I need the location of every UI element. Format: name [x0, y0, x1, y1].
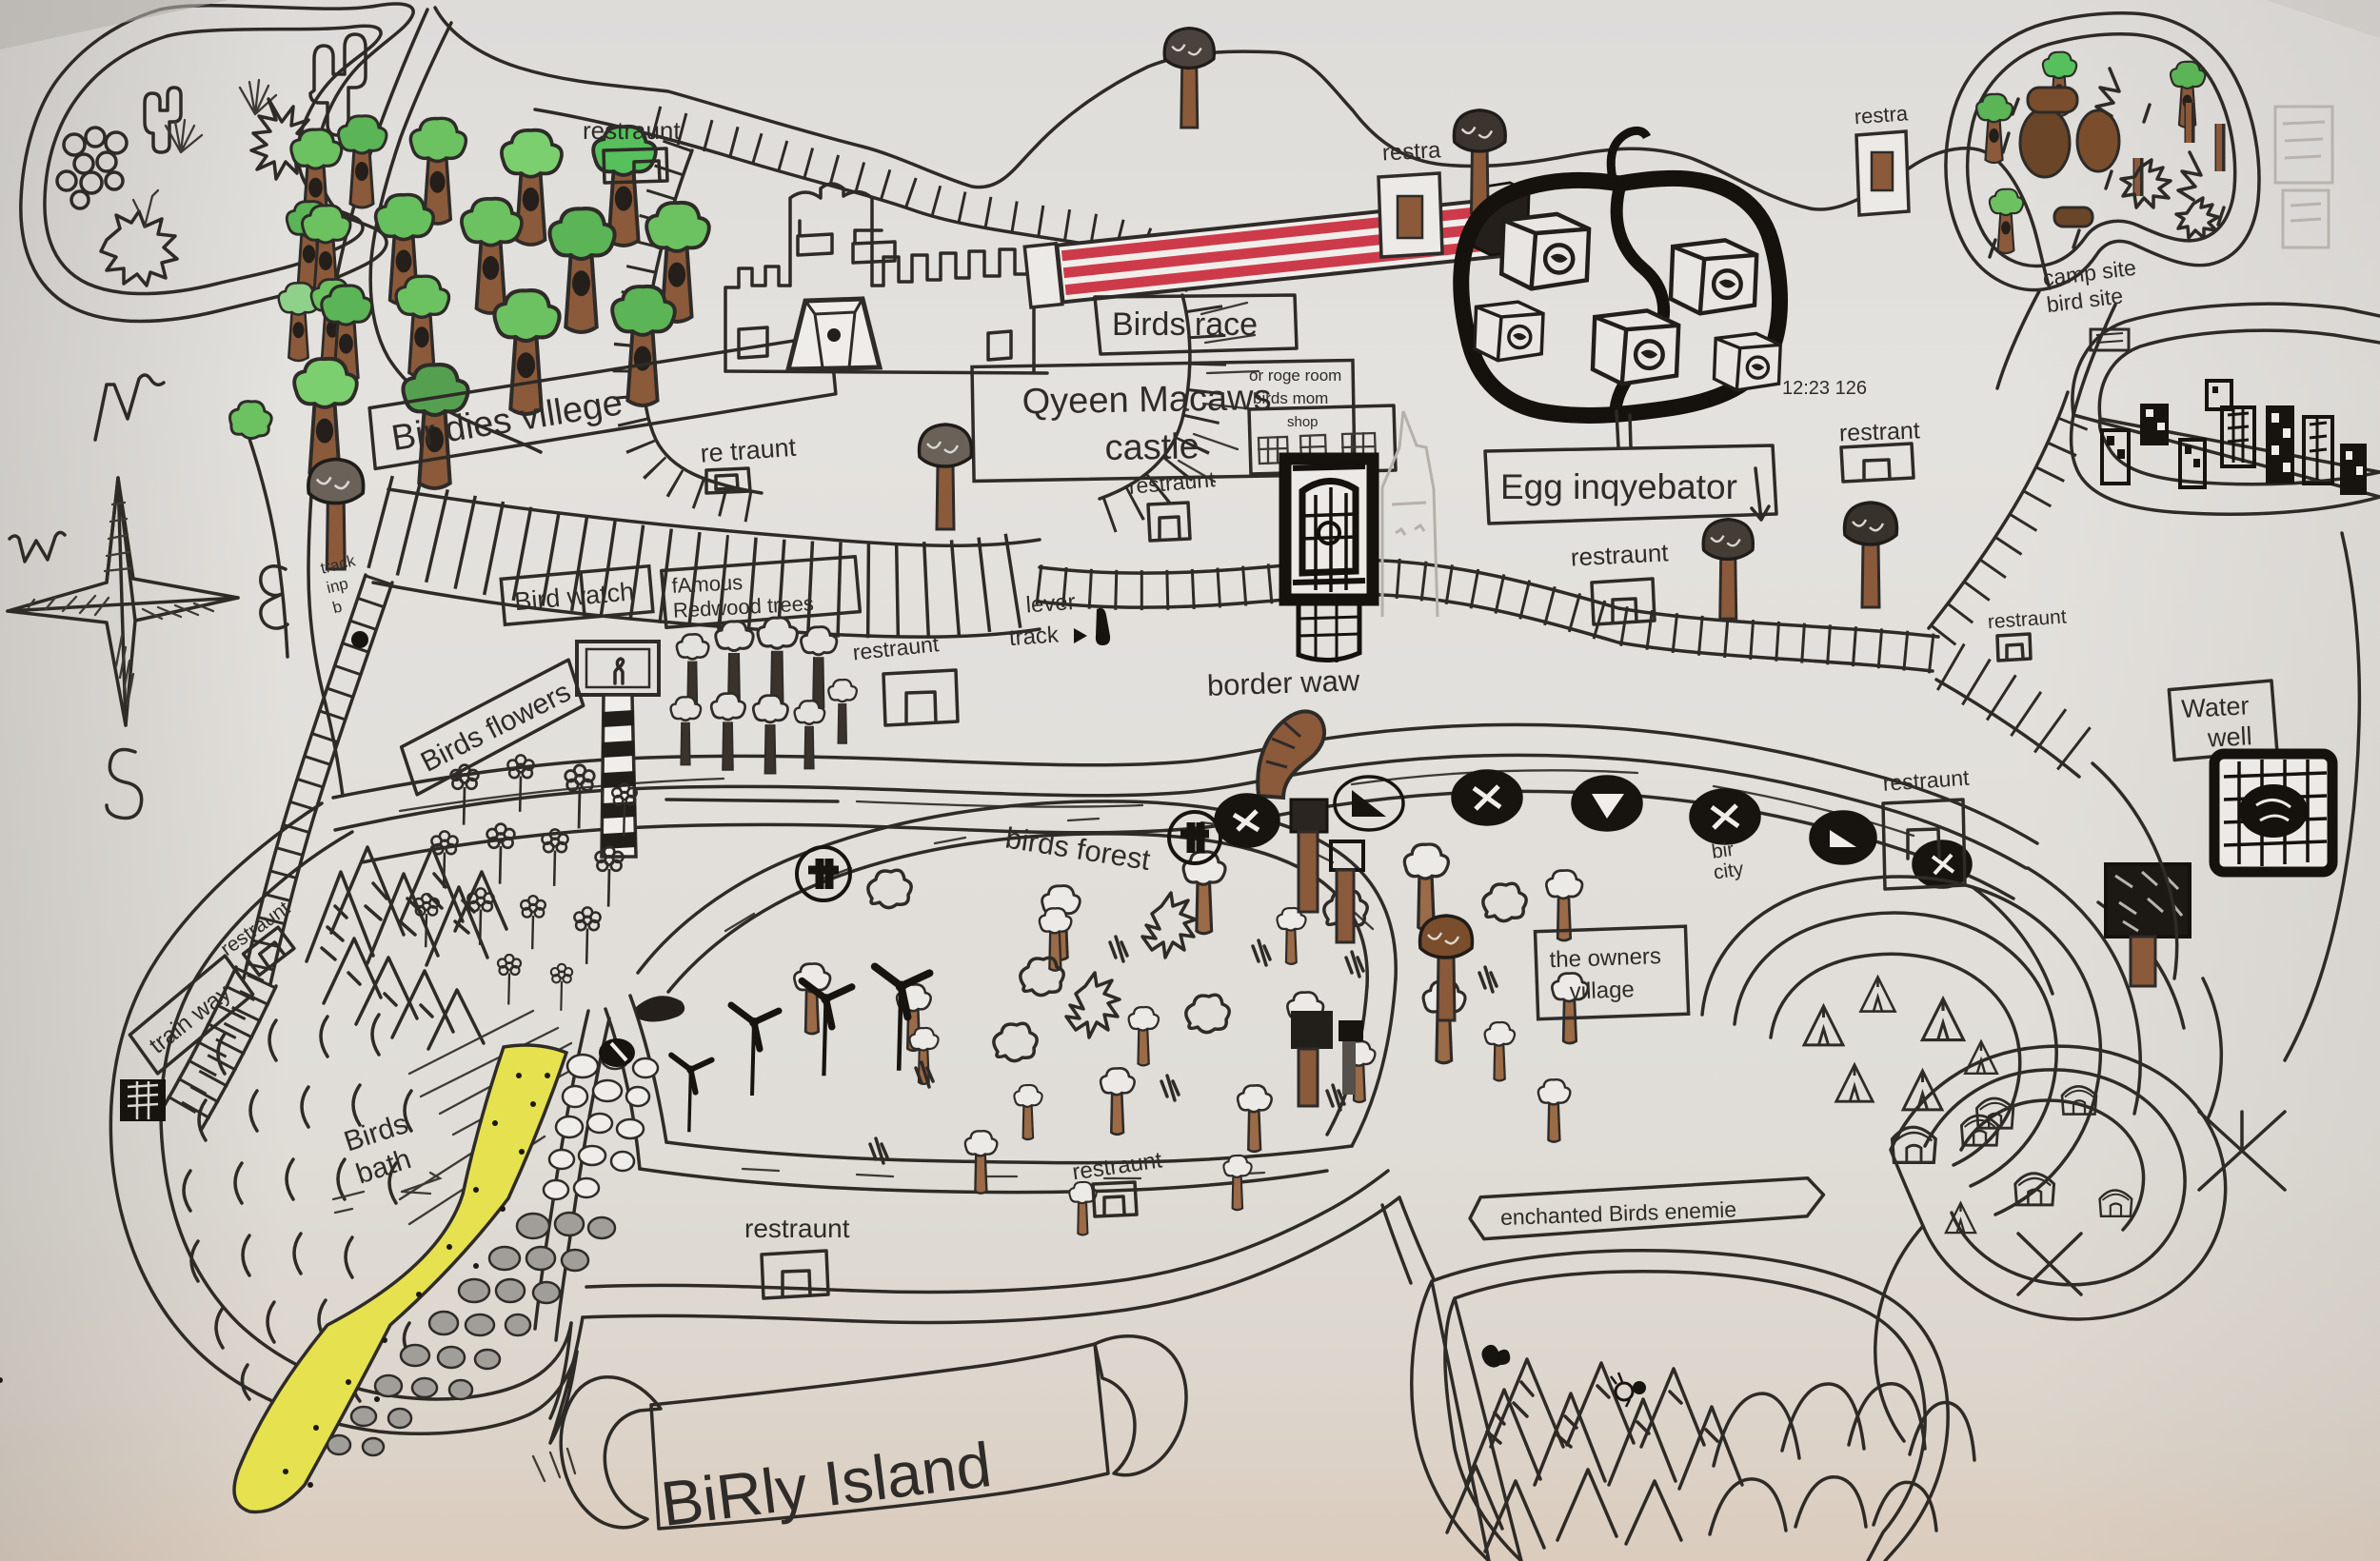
svg-text:Birds race: Birds race	[1112, 306, 1258, 343]
svg-text:castle: castle	[1104, 426, 1200, 468]
svg-text:12:23 126: 12:23 126	[1782, 378, 1867, 399]
svg-text:restra: restra	[1854, 101, 1910, 128]
svg-text:Qyeen Macaws: Qyeen Macaws	[1021, 378, 1272, 423]
svg-text:restraunt: restraunt	[1570, 538, 1670, 571]
svg-text:well: well	[2206, 721, 2252, 752]
svg-text:the owners: the owners	[1549, 943, 1661, 973]
svg-text:birds mom: birds mom	[1253, 389, 1328, 407]
svg-text:village: village	[1569, 977, 1635, 1004]
svg-text:lever: lever	[1025, 589, 1077, 619]
svg-text:restraunt: restraunt	[583, 116, 681, 145]
svg-text:shop: shop	[1287, 414, 1319, 430]
svg-text:track: track	[1008, 622, 1061, 651]
svg-text:restra: restra	[1381, 137, 1441, 166]
svg-text:border waw: border waw	[1206, 663, 1360, 702]
svg-text:Water: Water	[2181, 691, 2250, 723]
svg-text:or roge room: or roge room	[1249, 366, 1341, 385]
svg-text:Egg inqyebator: Egg inqyebator	[1500, 467, 1737, 506]
svg-text:fAmous: fAmous	[671, 570, 744, 598]
svg-text:city: city	[1712, 858, 1745, 883]
svg-text:restraunt: restraunt	[744, 1214, 850, 1243]
